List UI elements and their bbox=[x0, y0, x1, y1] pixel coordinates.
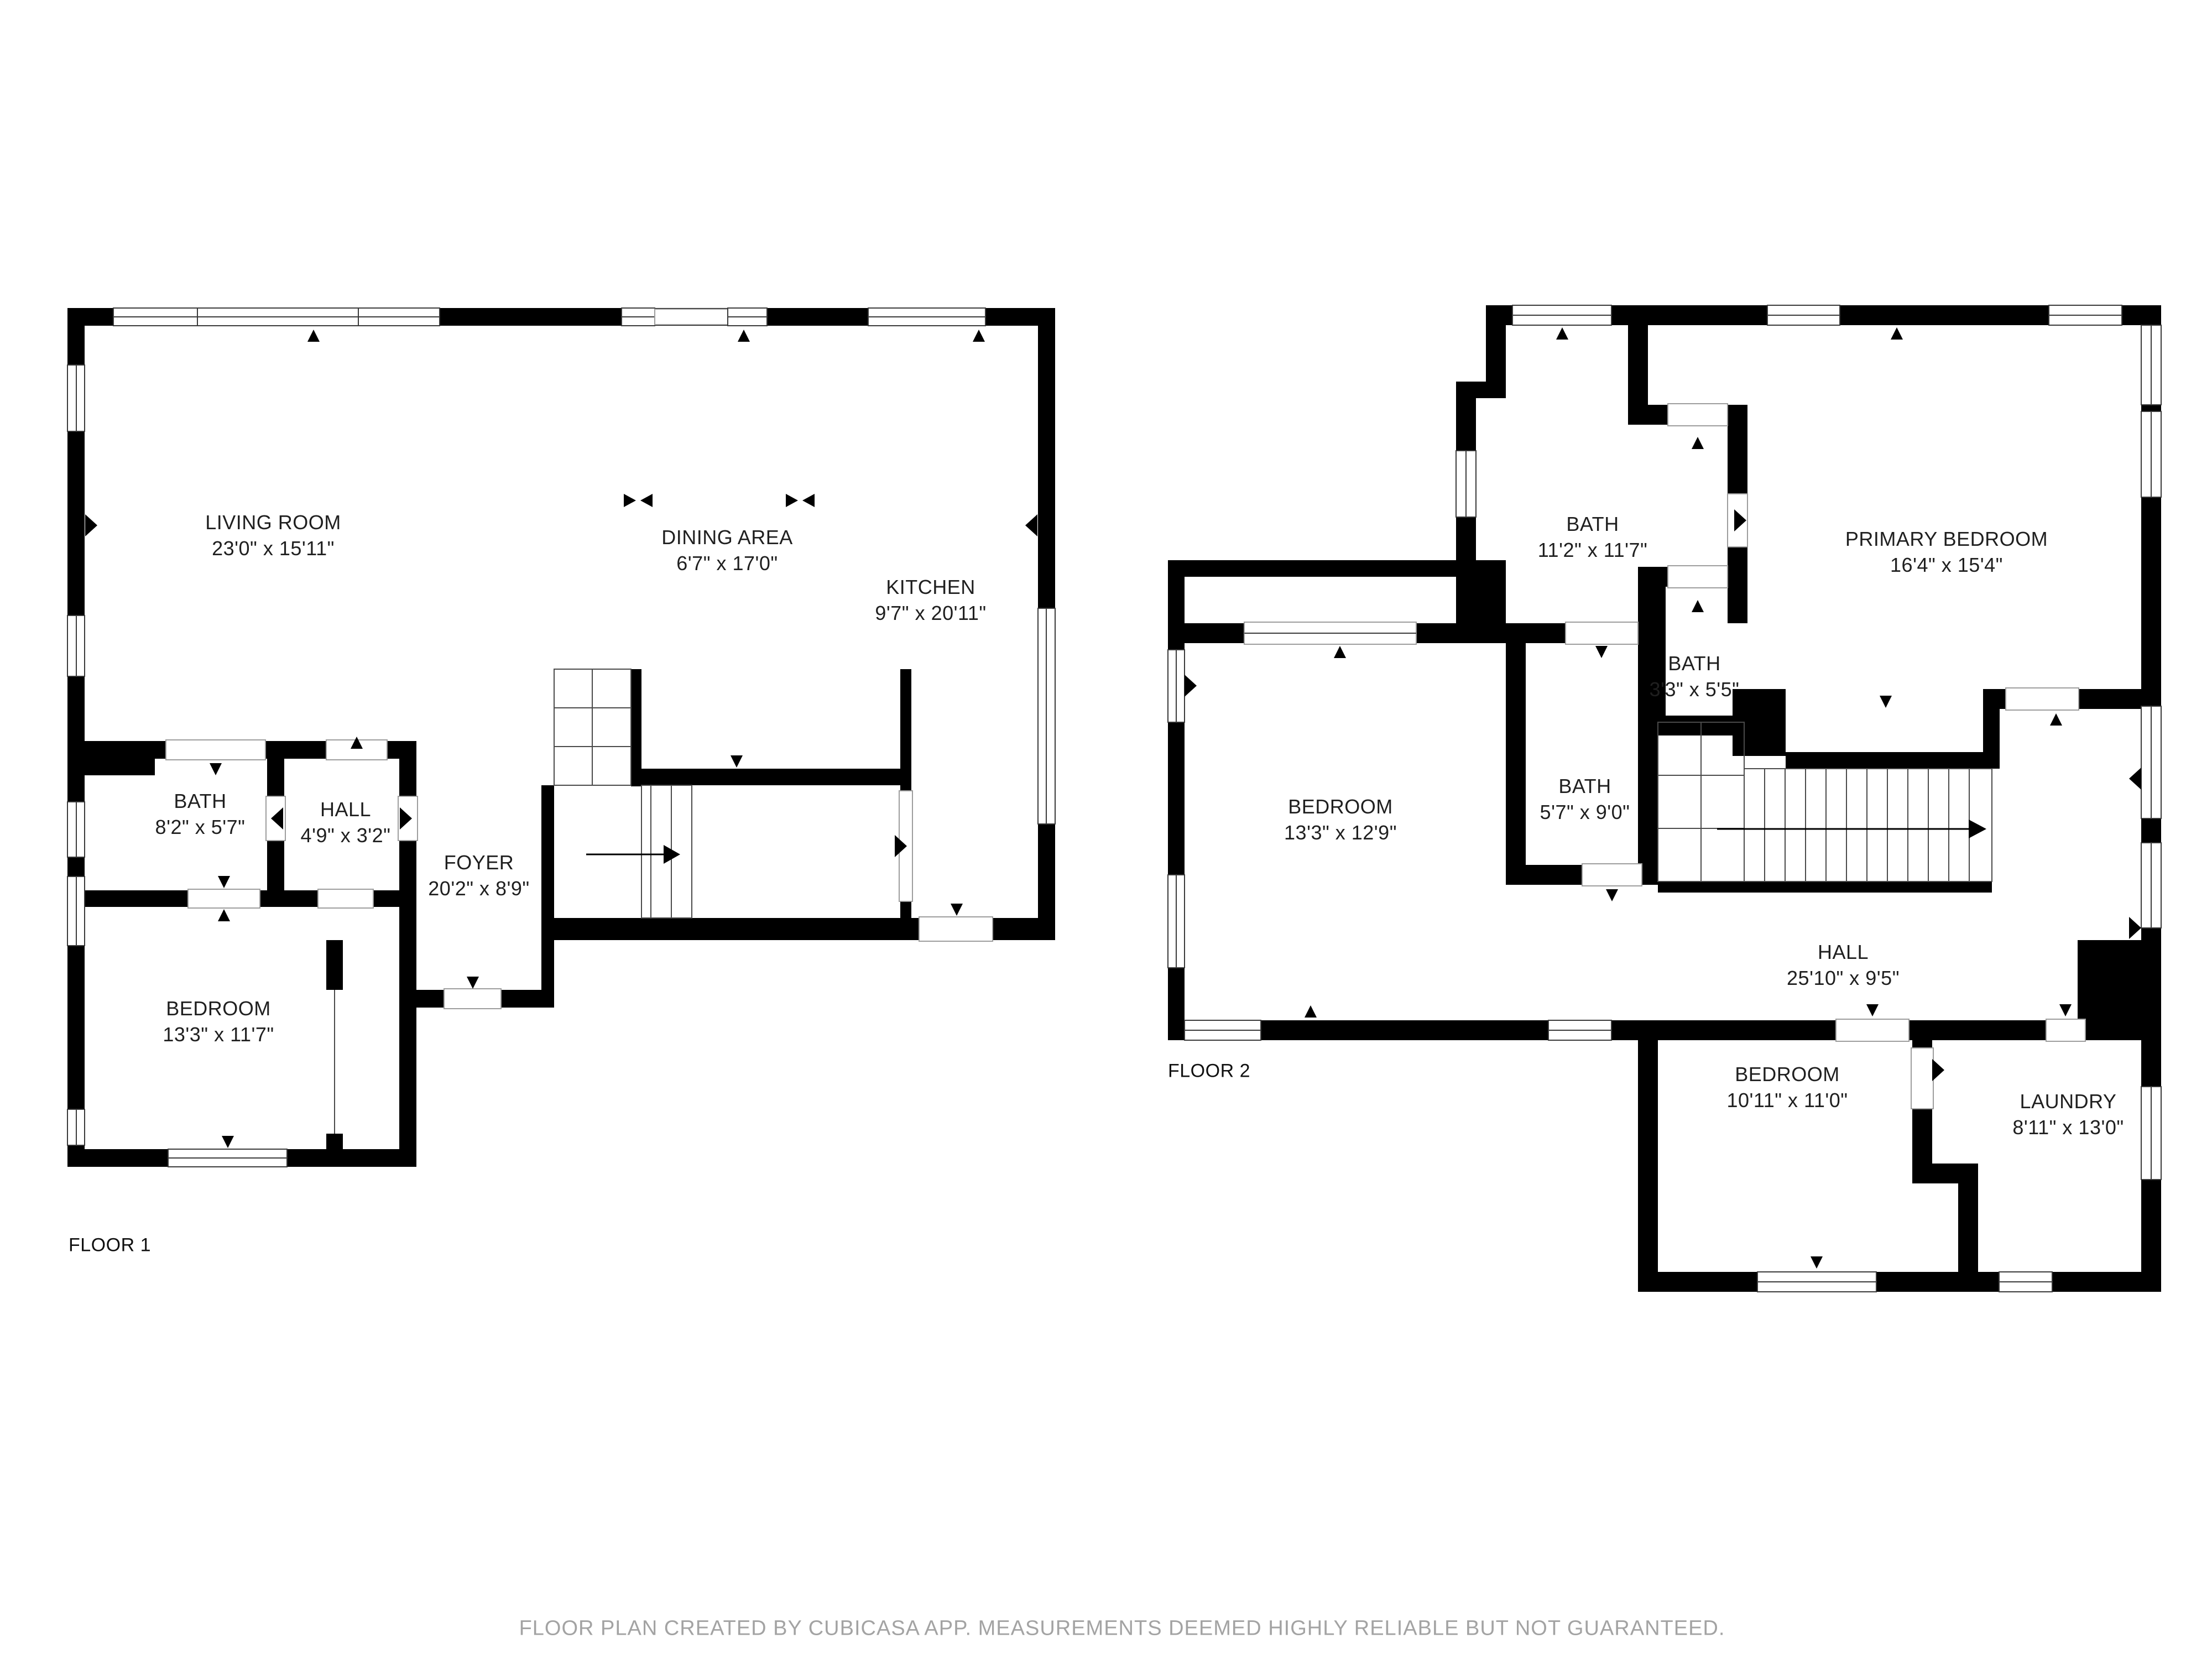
room-label-bath-middle: BATH 5'7" x 9'0" bbox=[1540, 773, 1630, 825]
room-dims: 8'11" x 13'0" bbox=[2012, 1114, 2124, 1140]
room-dims: 16'4" x 15'4" bbox=[1845, 552, 2048, 578]
room-label-bath-upper: BATH 11'2" x 11'7" bbox=[1538, 511, 1648, 563]
room-dims: 4'9" x 3'2" bbox=[301, 822, 391, 848]
room-label-primary-bedroom: PRIMARY BEDROOM 16'4" x 15'4" bbox=[1845, 526, 2048, 578]
room-dims: 5'7" x 9'0" bbox=[1540, 799, 1630, 825]
room-name: BATH bbox=[1650, 650, 1740, 676]
floor1-stairs bbox=[554, 669, 692, 918]
room-dims: 6'7" x 17'0" bbox=[661, 550, 793, 576]
room-label-bedroom-f1: BEDROOM 13'3" x 11'7" bbox=[163, 995, 274, 1047]
room-label-dining-area: DINING AREA 6'7" x 17'0" bbox=[661, 524, 793, 576]
room-dims: 13'3" x 12'9" bbox=[1284, 820, 1397, 846]
disclaimer-text: FLOOR PLAN CREATED BY CUBICASA APP. MEAS… bbox=[519, 1617, 1725, 1641]
room-dims: 3'3" x 5'5" bbox=[1650, 676, 1740, 702]
room-name: HALL bbox=[301, 796, 391, 822]
room-name: BEDROOM bbox=[1284, 794, 1397, 820]
room-label-bedroom-f2-left: BEDROOM 13'3" x 12'9" bbox=[1284, 794, 1397, 846]
room-label-kitchen: KITCHEN 9'7" x 20'11" bbox=[875, 574, 986, 626]
room-name: BEDROOM bbox=[1726, 1061, 1848, 1087]
room-name: PRIMARY BEDROOM bbox=[1845, 526, 2048, 552]
room-label-hall-f1: HALL 4'9" x 3'2" bbox=[301, 796, 391, 848]
room-dims: 20'2" x 8'9" bbox=[428, 875, 529, 901]
room-label-living-room: LIVING ROOM 23'0" x 15'11" bbox=[205, 509, 341, 561]
room-dims: 11'2" x 11'7" bbox=[1538, 537, 1648, 563]
room-name: HALL bbox=[1787, 939, 1900, 965]
room-dims: 10'11" x 11'0" bbox=[1726, 1087, 1848, 1113]
room-name: KITCHEN bbox=[875, 574, 986, 600]
room-dims: 9'7" x 20'11" bbox=[875, 600, 986, 626]
room-name: BEDROOM bbox=[163, 995, 274, 1021]
room-name: BATH bbox=[1540, 773, 1630, 799]
floor1-label: FLOOR 1 bbox=[69, 1235, 151, 1256]
room-label-foyer: FOYER 20'2" x 8'9" bbox=[428, 849, 529, 901]
room-label-hall-f2: HALL 25'10" x 9'5" bbox=[1787, 939, 1900, 991]
room-name: LIVING ROOM bbox=[205, 509, 341, 535]
room-dims: 23'0" x 15'11" bbox=[205, 535, 341, 561]
room-label-laundry: LAUNDRY 8'11" x 13'0" bbox=[2012, 1088, 2124, 1140]
room-label-bath-small: BATH 3'3" x 5'5" bbox=[1650, 650, 1740, 702]
room-label-bath-f1: BATH 8'2" x 5'7" bbox=[155, 788, 246, 840]
room-name: BATH bbox=[1538, 511, 1648, 537]
room-dims: 25'10" x 9'5" bbox=[1787, 965, 1900, 991]
room-name: FOYER bbox=[428, 849, 529, 875]
room-label-bedroom-f2-bottom: BEDROOM 10'11" x 11'0" bbox=[1726, 1061, 1848, 1113]
room-name: BATH bbox=[155, 788, 246, 814]
room-name: DINING AREA bbox=[661, 524, 793, 550]
room-dims: 8'2" x 5'7" bbox=[155, 814, 246, 840]
room-name: LAUNDRY bbox=[2012, 1088, 2124, 1114]
room-dims: 13'3" x 11'7" bbox=[163, 1021, 274, 1047]
floorplan-canvas: LIVING ROOM 23'0" x 15'11" DINING AREA 6… bbox=[0, 0, 2212, 1659]
floor2-label: FLOOR 2 bbox=[1168, 1061, 1250, 1082]
floor2-stairs bbox=[1658, 722, 1992, 881]
